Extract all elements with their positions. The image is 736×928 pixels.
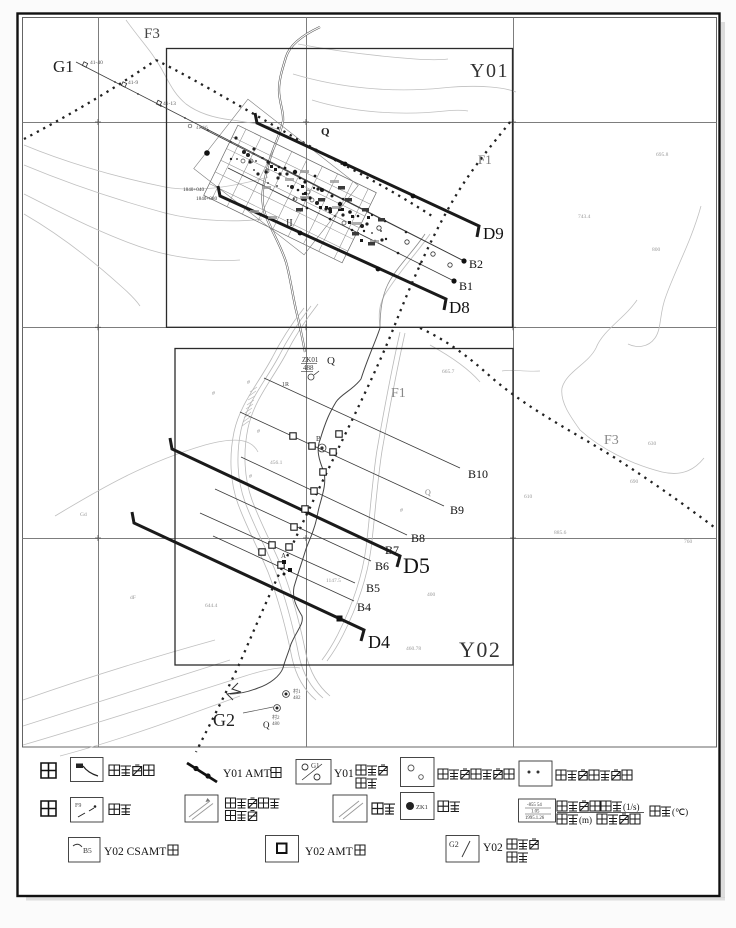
svg-text:G2: G2 xyxy=(213,710,235,730)
svg-text:665.7: 665.7 xyxy=(442,369,455,375)
svg-text:F3: F3 xyxy=(144,26,160,42)
svg-text:#: # xyxy=(257,429,260,435)
svg-text:ZK1: ZK1 xyxy=(416,804,428,811)
svg-text:Y01: Y01 xyxy=(334,768,354,780)
svg-text:B5: B5 xyxy=(366,581,380,595)
svg-text:1995.1.26: 1995.1.26 xyxy=(525,816,545,821)
svg-text:F3: F3 xyxy=(604,433,619,448)
svg-text:(1/s): (1/s) xyxy=(623,802,640,812)
svg-text:1147.5: 1147.5 xyxy=(326,578,341,584)
svg-text:D9: D9 xyxy=(483,224,504,243)
svg-text:Q: Q xyxy=(263,720,270,730)
svg-text:800: 800 xyxy=(652,247,661,253)
svg-text:D8: D8 xyxy=(449,298,470,317)
svg-text:1840+040: 1840+040 xyxy=(183,187,204,193)
svg-text:Gd: Gd xyxy=(80,512,87,518)
svg-text:D5: D5 xyxy=(403,553,430,578)
svg-text:村2: 村2 xyxy=(272,714,280,721)
svg-text:B8: B8 xyxy=(411,531,425,545)
svg-text:41-13: 41-13 xyxy=(163,101,176,107)
svg-text:-855 54: -855 54 xyxy=(527,803,542,808)
svg-text:482: 482 xyxy=(293,696,301,701)
svg-text:II: II xyxy=(286,218,293,229)
svg-text:Q: Q xyxy=(321,126,330,138)
svg-text:743.4: 743.4 xyxy=(578,214,591,220)
svg-text:B6: B6 xyxy=(375,559,389,573)
svg-text:480: 480 xyxy=(272,722,280,727)
svg-text:885.6: 885.6 xyxy=(554,530,567,536)
svg-text:610: 610 xyxy=(524,494,533,500)
svg-text:F9: F9 xyxy=(75,803,81,809)
svg-text:630: 630 xyxy=(648,441,657,447)
svg-text:ZK01: ZK01 xyxy=(302,356,319,364)
svg-text:460.78: 460.78 xyxy=(406,646,421,652)
svg-text:#: # xyxy=(249,474,252,480)
svg-text:B1: B1 xyxy=(459,279,473,293)
svg-text:(℃): (℃) xyxy=(672,807,688,817)
svg-text:Y02: Y02 xyxy=(483,842,503,854)
svg-text:Y01 AMT: Y01 AMT xyxy=(223,768,271,780)
svg-text:41-9: 41-9 xyxy=(128,80,138,86)
svg-text:A: A xyxy=(281,552,286,560)
svg-text:D4: D4 xyxy=(368,632,390,652)
svg-text:村1: 村1 xyxy=(293,688,301,695)
svg-text:#: # xyxy=(400,508,403,514)
svg-text:644.4: 644.4 xyxy=(205,603,218,609)
svg-text:Y01: Y01 xyxy=(470,60,509,82)
svg-text:#: # xyxy=(212,391,215,397)
svg-text:456.1: 456.1 xyxy=(270,460,283,466)
svg-text:695.8: 695.8 xyxy=(656,152,669,158)
svg-text:Y02 CSAMT: Y02 CSAMT xyxy=(104,846,166,858)
svg-text:B: B xyxy=(316,435,321,443)
svg-text:B5: B5 xyxy=(83,846,92,855)
svg-text:Q: Q xyxy=(327,355,335,367)
svg-text:41-40: 41-40 xyxy=(90,60,103,66)
svg-text:690: 690 xyxy=(630,479,639,485)
svg-text:G1: G1 xyxy=(53,57,74,76)
svg-text:F1: F1 xyxy=(391,386,406,401)
svg-text:488: 488 xyxy=(303,364,314,372)
svg-text:(m): (m) xyxy=(579,815,592,825)
svg-text:B10: B10 xyxy=(468,467,488,481)
svg-text:dF: dF xyxy=(130,595,136,601)
svg-text:760: 760 xyxy=(684,539,693,545)
svg-text:Q: Q xyxy=(425,488,431,497)
svg-text:B9: B9 xyxy=(450,503,464,517)
svg-text:400: 400 xyxy=(427,592,436,598)
svg-text:B2: B2 xyxy=(469,257,483,271)
svg-text:#: # xyxy=(247,380,250,386)
svg-text:G1: G1 xyxy=(311,762,320,770)
svg-text:1R: 1R xyxy=(282,382,289,388)
svg-text:B4: B4 xyxy=(357,600,371,614)
svg-text:G2: G2 xyxy=(449,840,459,849)
svg-text:F1: F1 xyxy=(478,152,492,167)
svg-text:Y02: Y02 xyxy=(459,637,501,662)
svg-text:Y02 AMT: Y02 AMT xyxy=(305,846,353,858)
svg-text:1840+080: 1840+080 xyxy=(196,196,217,202)
